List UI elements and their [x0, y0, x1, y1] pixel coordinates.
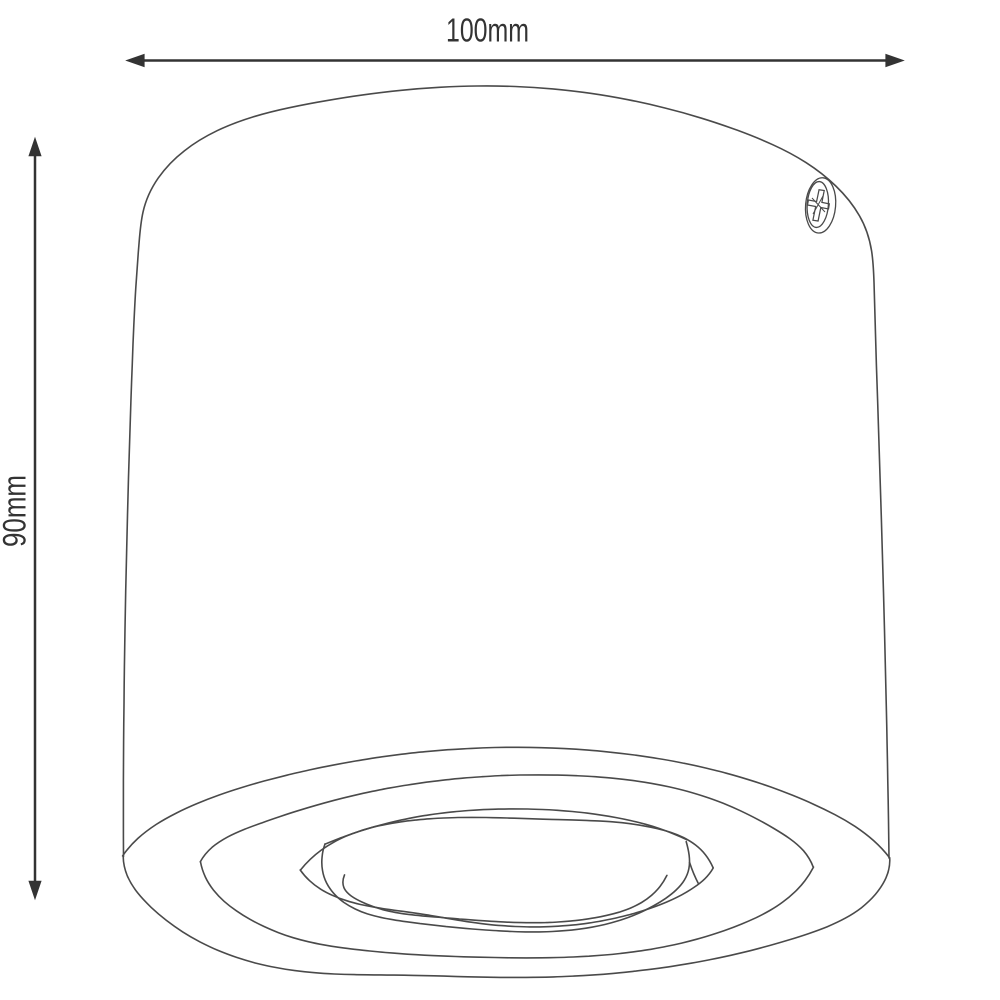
- svg-text:100mm: 100mm: [446, 12, 529, 49]
- svg-text:90mm: 90mm: [0, 475, 33, 547]
